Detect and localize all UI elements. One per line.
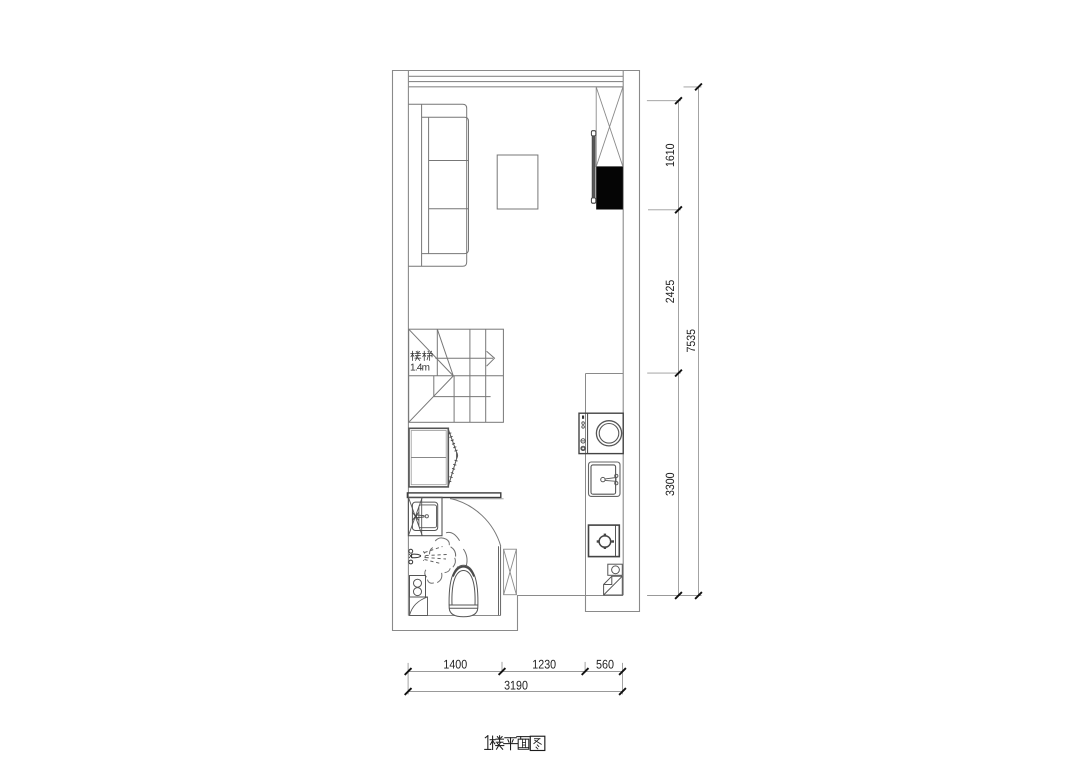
svg-text:2425: 2425: [663, 279, 677, 303]
svg-text:3300: 3300: [663, 472, 677, 496]
svg-text:1230: 1230: [532, 657, 556, 671]
svg-text:7535: 7535: [684, 329, 698, 353]
svg-text:1610: 1610: [663, 143, 677, 167]
svg-text:3190: 3190: [504, 678, 528, 692]
svg-text:1.4m: 1.4m: [410, 363, 430, 374]
svg-text:1400: 1400: [443, 657, 467, 671]
svg-text:560: 560: [596, 657, 614, 671]
